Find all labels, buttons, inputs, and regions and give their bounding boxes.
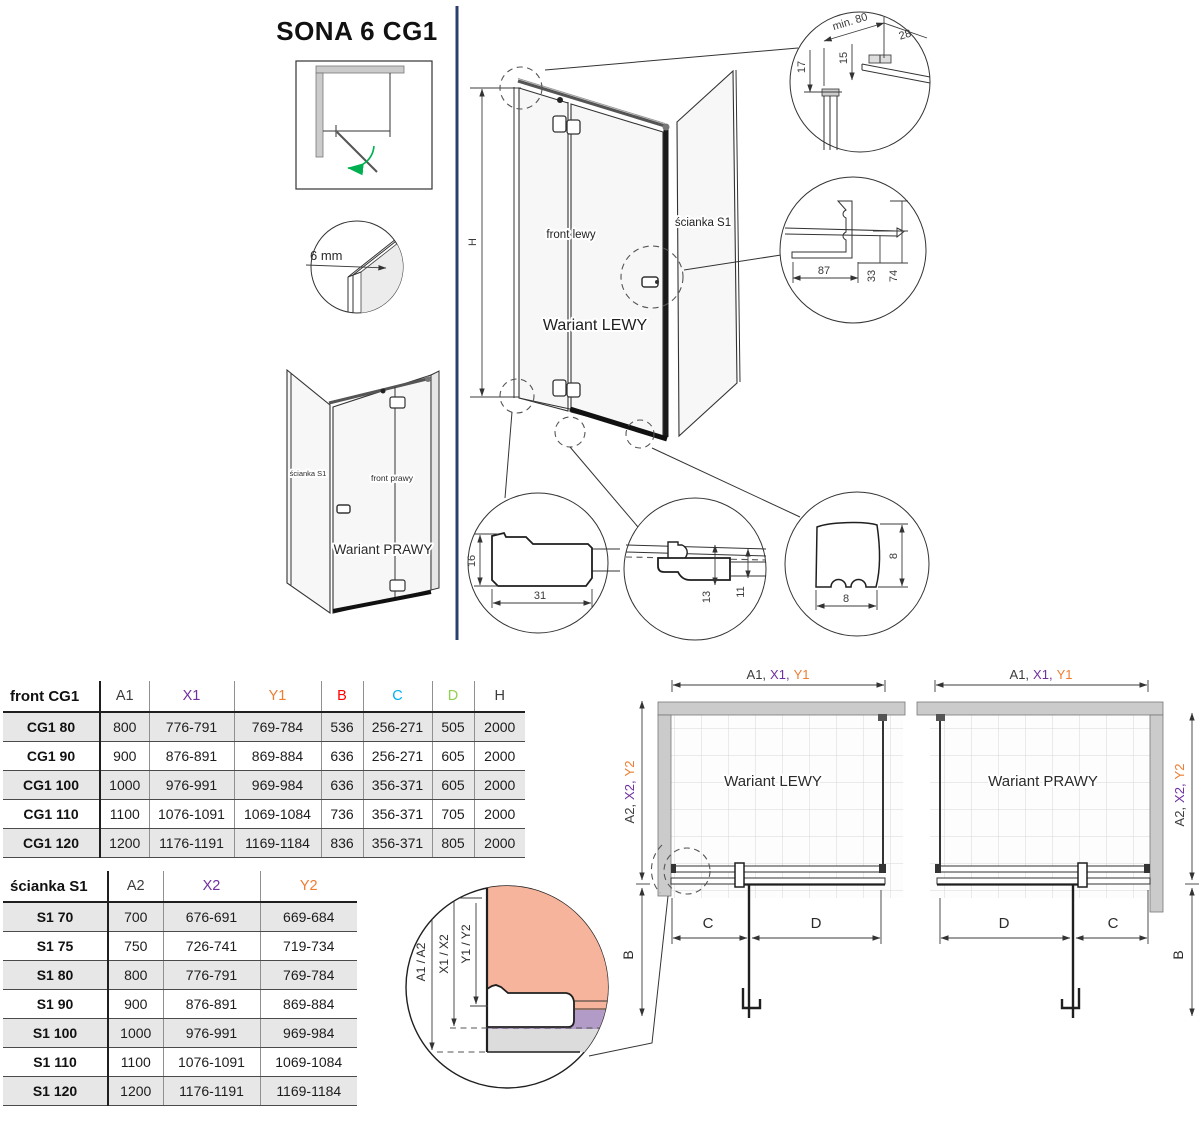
cell-value: 876-891 [149,742,234,771]
plan-right-dim-b: B [1170,950,1186,959]
cell-value: 1169-1184 [260,1077,357,1106]
cell-value: 719-734 [260,932,357,961]
table-row: CG1 11011001076-10911069-1084736356-3717… [3,800,525,829]
row-header: CG1 120 [3,829,100,858]
column-header: D [432,681,474,712]
legend-y-label: Y1 / Y2 [459,924,473,963]
dim-16: 16 [466,555,478,567]
detail-handle-profile: 87 33 74 [780,177,926,323]
row-header: CG1 110 [3,800,100,829]
plan-left-dim-c: C [703,915,714,932]
row-header: S1 120 [3,1077,108,1106]
cell-value: 776-791 [163,961,260,990]
table-row: S1 12012001176-11911169-1184 [3,1077,357,1106]
cell-value: 700 [108,902,163,932]
table-row: CG1 1001000976-991969-984636356-37160520… [3,771,525,800]
cell-value: 2000 [474,800,525,829]
cell-value: 869-884 [260,990,357,1019]
table-row: S1 80800776-791769-784 [3,961,357,990]
column-header: A1 [100,681,149,712]
cell-value: 669-684 [260,902,357,932]
plan-left-top-dim: A1,X1,Y1 [747,667,810,682]
cell-value: 976-991 [149,771,234,800]
row-header: S1 80 [3,961,108,990]
cell-value: 776-791 [149,712,234,742]
cell-value: 356-371 [363,800,432,829]
table-row: S1 90900876-891869-884 [3,990,357,1019]
plan-right-side-dim: A2,X2,Y2 [1172,764,1187,827]
front-right-label: front prawy [371,473,414,483]
cell-value: 356-371 [363,829,432,858]
column-header: X2 [163,871,260,902]
cell-value: 1176-1191 [163,1077,260,1106]
cell-value: 256-271 [363,742,432,771]
cell-value: 1069-1084 [234,800,321,829]
detail-bottom-profile: 16 31 [466,493,620,633]
variant-left-title: Wariant LEWY [543,317,648,334]
cell-value: 256-271 [363,712,432,742]
row-header: S1 110 [3,1048,108,1077]
cell-value: 605 [432,742,474,771]
dim-13: 13 [701,591,713,603]
column-header: Y1 [234,681,321,712]
cell-value: 869-884 [234,742,321,771]
cell-value: 969-984 [260,1019,357,1048]
table-row: CG1 80800776-791769-784536256-2715052000 [3,712,525,742]
cell-value: 976-991 [163,1019,260,1048]
front-table: front CG1A1X1Y1BCDHCG1 80800776-791769-7… [3,681,525,858]
cell-value: 2000 [474,712,525,742]
row-header: CG1 80 [3,712,100,742]
cell-value: 769-784 [260,961,357,990]
row-header: S1 70 [3,902,108,932]
plan-right-dim-d: D [999,915,1010,932]
dim-8-width: 8 [843,593,849,605]
variant-right-title: Wariant PRAWY [334,542,433,557]
cell-value: 750 [108,932,163,961]
cell-value: 769-784 [234,712,321,742]
side-panel-label-right: ścianka S1 [290,469,327,478]
page: SONA 6 CG1 [0,0,1200,1145]
legend-a-label: A1 / A2 [414,942,428,981]
legend-detail-circle: A1 / A2 X1 / X2 Y1 / Y2 [406,885,612,1088]
table-row: CG1 12012001176-11911169-1184836356-3718… [3,829,525,858]
plan-right-top-dim: A1,X1,Y1 [1010,667,1073,682]
cell-value: 1169-1184 [234,829,321,858]
height-dim-label: H [467,238,479,246]
plan-left-dim-b: B [620,950,636,959]
plan-left-side-dim: A2,X2,Y2 [622,761,637,824]
cell-value: 636 [321,771,363,800]
top-view-pictogram [296,61,432,189]
cell-value: 876-891 [163,990,260,1019]
table-title: ścianka S1 [3,871,108,902]
plan-left: A1,X1,Y1 Wariant LEWY C D [589,667,905,1056]
row-header: S1 75 [3,932,108,961]
cell-value: 1100 [100,800,149,829]
cell-value: 2000 [474,829,525,858]
detail-gasket: 8 8 [785,492,929,636]
row-header: S1 90 [3,990,108,1019]
row-header: S1 100 [3,1019,108,1048]
plan-left-title: Wariant LEWY [724,773,822,790]
cell-value: 536 [321,712,363,742]
dim-33: 33 [866,270,878,282]
cell-value: 726-741 [163,932,260,961]
cell-value: 900 [100,742,149,771]
row-header: CG1 90 [3,742,100,771]
detail-bottom-seal: 13 11 [624,498,766,640]
cell-value: 1000 [100,771,149,800]
dim-31: 31 [534,590,546,602]
cell-value: 1000 [108,1019,163,1048]
table-row: CG1 90900876-891869-884636256-2716052000 [3,742,525,771]
table-row: S1 11011001076-10911069-1084 [3,1048,357,1077]
variant-right-3d: ścianka S1 front prawy Wariant PRAWY [287,370,439,613]
plan-right-dim-c: C [1108,915,1119,932]
cell-value: 636 [321,742,363,771]
cell-value: 1200 [100,829,149,858]
cell-value: 1200 [108,1077,163,1106]
column-header: A2 [108,871,163,902]
detail-top-profile: min. 80 28 15 17 [790,11,930,152]
cell-value: 805 [432,829,474,858]
cell-value: 1076-1091 [149,800,234,829]
cell-value: 800 [108,961,163,990]
cell-value: 605 [432,771,474,800]
cell-value: 900 [108,990,163,1019]
column-header: H [474,681,525,712]
dim-11: 11 [735,586,747,597]
glass-thickness-label: 6 mm [310,248,343,263]
dim-15: 15 [838,52,850,64]
column-header: Y2 [260,871,357,902]
plan-right-title: Wariant PRAWY [988,773,1098,790]
table-row: S1 70700676-691669-684 [3,902,357,932]
cell-value: 800 [100,712,149,742]
dim-87: 87 [818,265,830,277]
cell-value: 676-691 [163,902,260,932]
plan-right: A1,X1,Y1 Wariant PRAWY D C [917,667,1199,1018]
dim-8-height: 8 [888,553,900,559]
side-panel-label-left: ścianka S1 [675,217,731,229]
cell-value: 1076-1091 [163,1048,260,1077]
cell-value: 969-984 [234,771,321,800]
legend-x-label: X1 / X2 [437,934,451,974]
column-header: X1 [149,681,234,712]
side-table: ścianka S1A2X2Y2S1 70700676-691669-684S1… [3,871,357,1106]
cell-value: 356-371 [363,771,432,800]
cell-value: 2000 [474,742,525,771]
variant-left-3d: H front lewy [467,48,800,527]
cell-value: 836 [321,829,363,858]
cell-value: 1100 [108,1048,163,1077]
dim-74: 74 [888,270,900,282]
front-left-label: front lewy [546,229,595,241]
cell-value: 505 [432,712,474,742]
row-header: CG1 100 [3,771,100,800]
cell-value: 736 [321,800,363,829]
column-header: B [321,681,363,712]
table-row: S1 1001000976-991969-984 [3,1019,357,1048]
glass-thickness-detail: 6 mm [306,221,407,335]
cell-value: 705 [432,800,474,829]
dim-17: 17 [796,61,808,73]
cell-value: 1176-1191 [149,829,234,858]
cell-value: 2000 [474,771,525,800]
column-header: C [363,681,432,712]
table-title: front CG1 [3,681,100,712]
cell-value: 1069-1084 [260,1048,357,1077]
plan-left-dim-d: D [811,915,822,932]
table-row: S1 75750726-741719-734 [3,932,357,961]
